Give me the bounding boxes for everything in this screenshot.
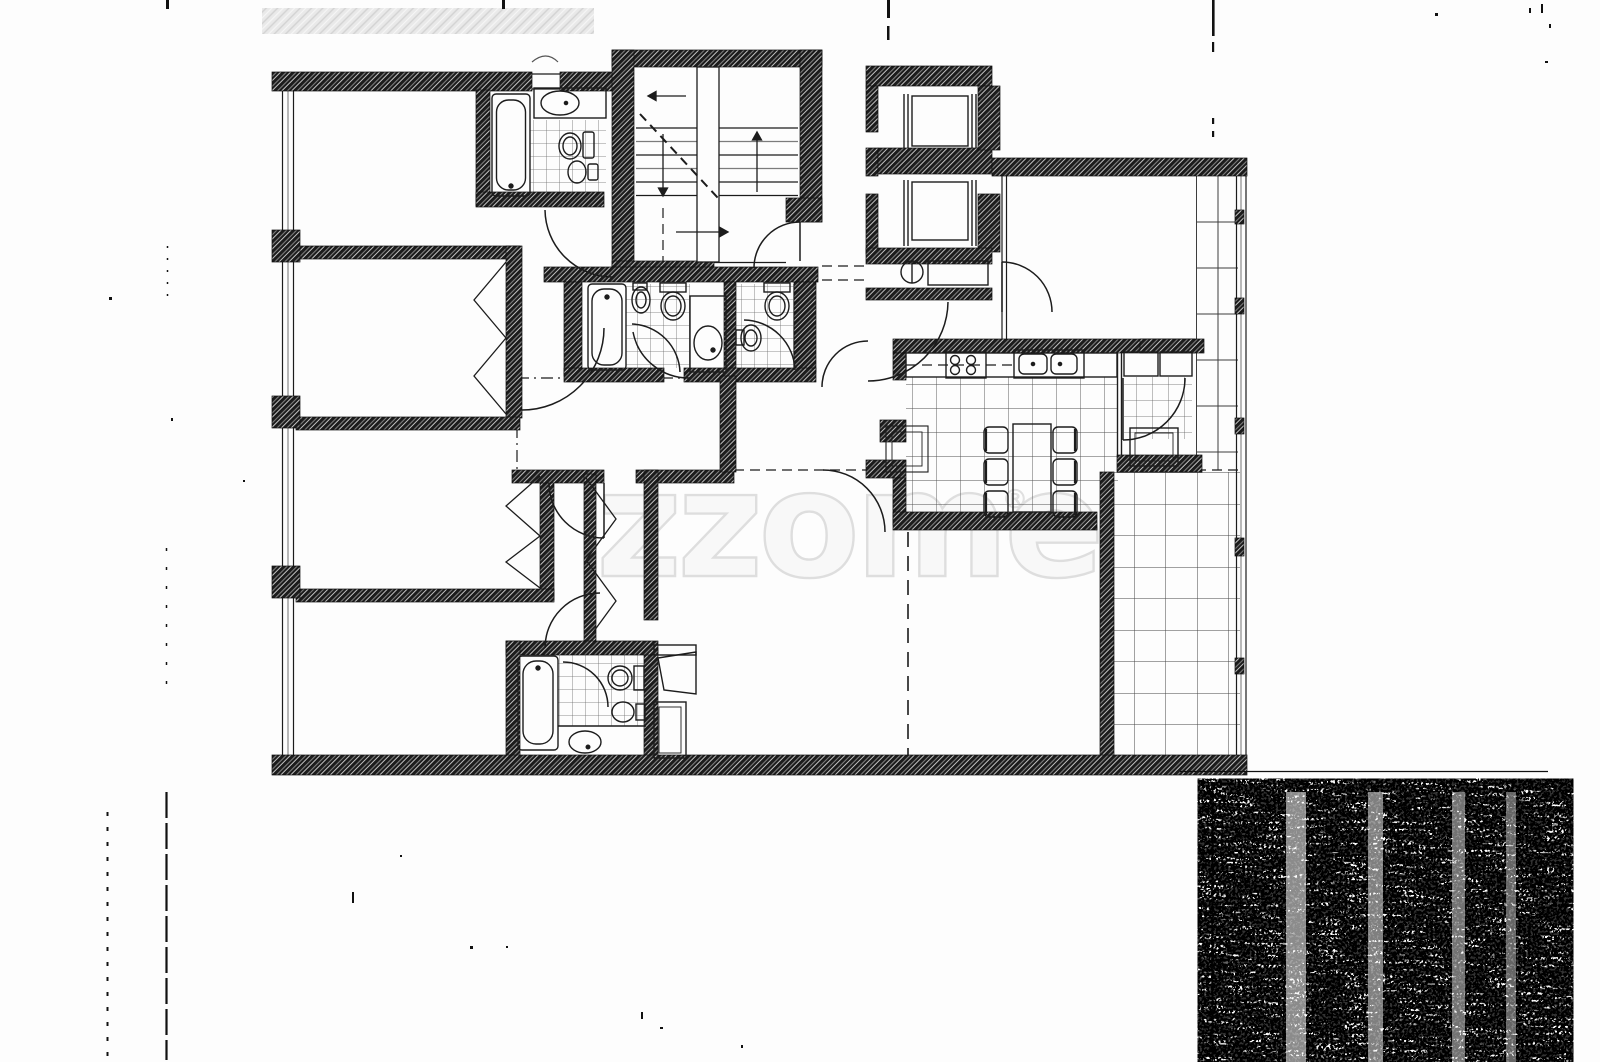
bathtub bbox=[492, 94, 530, 196]
laundry-sink bbox=[658, 652, 696, 694]
bedroom-4-closet bbox=[506, 476, 540, 588]
stair-stringer bbox=[697, 67, 719, 262]
staircase bbox=[636, 67, 798, 262]
stairwell-top-wall bbox=[612, 50, 822, 67]
laundry-counter-2 bbox=[1160, 352, 1192, 376]
elevator-cab-2 bbox=[912, 182, 968, 240]
washbasin bbox=[569, 731, 601, 753]
elevator-cab-1 bbox=[912, 96, 968, 146]
elevator-top-wall bbox=[866, 66, 992, 86]
bedroom-2-closet bbox=[474, 262, 506, 414]
washbasin bbox=[694, 326, 722, 360]
bath-block-top-wall bbox=[544, 267, 818, 282]
lobby-bench bbox=[928, 261, 988, 285]
photocopy-ghost-band bbox=[262, 8, 594, 34]
right-wing-top-wall bbox=[992, 158, 1247, 176]
stair-down-arrow bbox=[659, 188, 668, 196]
washbasin bbox=[541, 91, 579, 115]
bottom-wall bbox=[272, 755, 1247, 775]
balcony-tiles bbox=[1196, 176, 1238, 470]
stair-up-arrow bbox=[753, 132, 762, 140]
floor-plan-drawing: zzome ® bbox=[0, 0, 1600, 1062]
bathroom-2-tiles bbox=[626, 284, 690, 368]
sink-basin-right bbox=[1051, 354, 1077, 374]
kitchen-tiles bbox=[906, 377, 1118, 512]
laundry-counter-1 bbox=[1124, 352, 1158, 376]
scanned-floor-plan-page: zzome ® bbox=[0, 0, 1600, 1062]
scanner-noise-blob bbox=[1215, 792, 1556, 1062]
top-wall-notch-arc bbox=[532, 56, 558, 62]
terrace-tiles bbox=[1114, 472, 1240, 755]
